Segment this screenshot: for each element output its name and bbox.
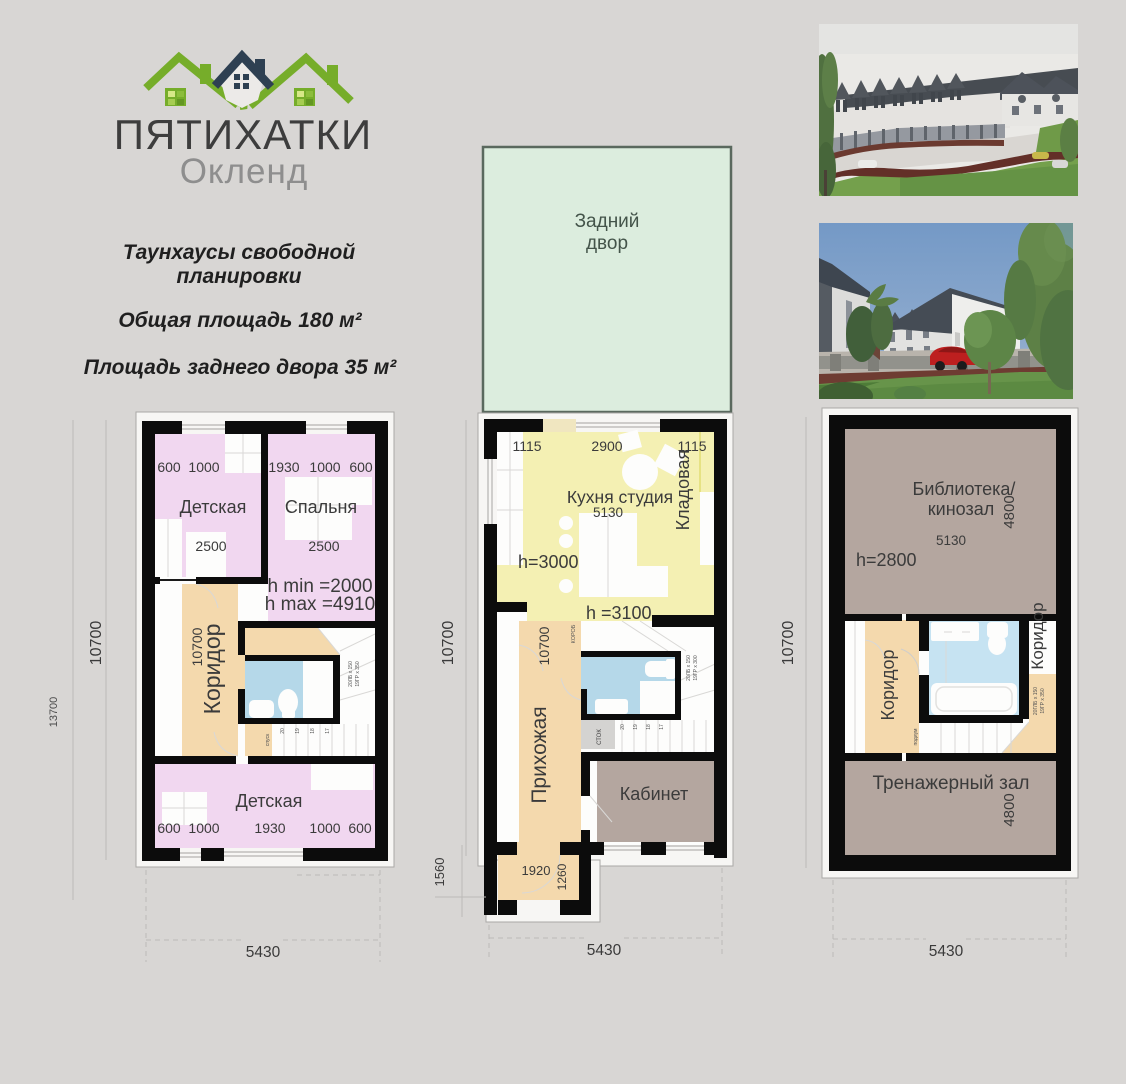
- svg-text:планировки: планировки: [177, 265, 302, 288]
- svg-text:h=2800: h=2800: [856, 550, 917, 570]
- svg-text:20ЛБ х 150: 20ЛБ х 150: [686, 655, 692, 681]
- svg-text:10700: 10700: [440, 621, 457, 666]
- svg-text:4800: 4800: [1001, 793, 1018, 826]
- svg-text:19: 19: [295, 728, 301, 734]
- svg-text:Детская: Детская: [236, 791, 303, 811]
- svg-text:1000: 1000: [188, 459, 219, 475]
- svg-text:Прихожая: Прихожая: [528, 706, 551, 803]
- svg-text:10700: 10700: [780, 621, 797, 666]
- svg-text:1560: 1560: [432, 858, 447, 887]
- svg-text:Кухня студия: Кухня студия: [567, 487, 673, 507]
- svg-text:13700: 13700: [48, 697, 60, 728]
- svg-text:1000: 1000: [309, 459, 340, 475]
- svg-text:4800: 4800: [1001, 495, 1018, 528]
- svg-text:600: 600: [348, 820, 372, 836]
- svg-text:10700: 10700: [88, 621, 105, 666]
- svg-text:СТОК: СТОК: [597, 729, 603, 745]
- svg-text:2900: 2900: [591, 438, 622, 454]
- svg-text:двор: двор: [586, 233, 628, 254]
- svg-text:h=3000: h=3000: [518, 552, 579, 572]
- svg-text:Таунхаусы свободной: Таунхаусы свободной: [123, 241, 356, 264]
- svg-text:1920: 1920: [522, 863, 551, 878]
- svg-text:1930: 1930: [254, 820, 285, 836]
- svg-text:Задний: Задний: [575, 211, 640, 232]
- svg-text:Коридор: Коридор: [1028, 602, 1047, 669]
- svg-text:5130: 5130: [593, 505, 623, 520]
- svg-text:h =3100: h =3100: [586, 603, 652, 623]
- svg-text:17: 17: [659, 724, 665, 730]
- svg-text:h max =4910: h max =4910: [265, 594, 375, 615]
- svg-text:Библиотека/: Библиотека/: [913, 479, 1016, 499]
- svg-text:19ГР х 350: 19ГР х 350: [355, 661, 361, 686]
- svg-text:Площадь заднего двора 35 м²: Площадь заднего двора 35 м²: [84, 356, 397, 379]
- svg-text:Кабинет: Кабинет: [620, 784, 688, 804]
- svg-text:1115: 1115: [512, 438, 541, 454]
- svg-text:19ГР х 350: 19ГР х 350: [1040, 688, 1046, 713]
- svg-text:спуск: спуск: [265, 733, 271, 746]
- svg-text:2500: 2500: [195, 538, 226, 554]
- svg-text:Тренажерный зал: Тренажерный зал: [873, 773, 1030, 794]
- svg-text:Кладовая: Кладовая: [673, 450, 693, 531]
- svg-text:5430: 5430: [587, 942, 622, 959]
- svg-text:1000: 1000: [309, 820, 340, 836]
- svg-text:Коридор: Коридор: [878, 649, 898, 720]
- svg-text:ПЯТИХАТКИ: ПЯТИХАТКИ: [114, 111, 372, 158]
- svg-text:5430: 5430: [929, 943, 964, 960]
- svg-text:Коридор: Коридор: [199, 624, 225, 715]
- svg-text:кинозал: кинозал: [928, 499, 994, 519]
- svg-text:20ЛБ х 150: 20ЛБ х 150: [348, 661, 354, 687]
- svg-text:600: 600: [157, 820, 181, 836]
- svg-text:19: 19: [633, 724, 639, 730]
- svg-text:10700: 10700: [536, 626, 552, 665]
- svg-text:20ГЛБ х 150: 20ГЛБ х 150: [1033, 687, 1039, 715]
- svg-text:18: 18: [310, 728, 316, 734]
- svg-text:19ГР х 300: 19ГР х 300: [693, 655, 699, 680]
- svg-text:5430: 5430: [246, 944, 281, 961]
- svg-text:подиум: подиум: [913, 728, 919, 746]
- svg-text:1000: 1000: [188, 820, 219, 836]
- svg-text:Общая площадь 180 м²: Общая площадь 180 м²: [118, 309, 362, 332]
- svg-text:17: 17: [325, 728, 331, 734]
- svg-text:600: 600: [349, 459, 373, 475]
- svg-text:20: 20: [280, 728, 286, 734]
- svg-text:18: 18: [646, 724, 652, 730]
- svg-text:Детская: Детская: [180, 497, 247, 517]
- svg-text:2500: 2500: [308, 538, 339, 554]
- svg-text:20: 20: [620, 724, 626, 730]
- svg-text:1930: 1930: [268, 459, 299, 475]
- svg-text:КОРОБ: КОРОБ: [571, 624, 577, 643]
- svg-text:600: 600: [157, 459, 181, 475]
- svg-text:Окленд: Окленд: [180, 152, 309, 191]
- svg-text:Спальня: Спальня: [285, 497, 357, 517]
- svg-text:1260: 1260: [555, 863, 569, 890]
- svg-text:5130: 5130: [936, 533, 966, 548]
